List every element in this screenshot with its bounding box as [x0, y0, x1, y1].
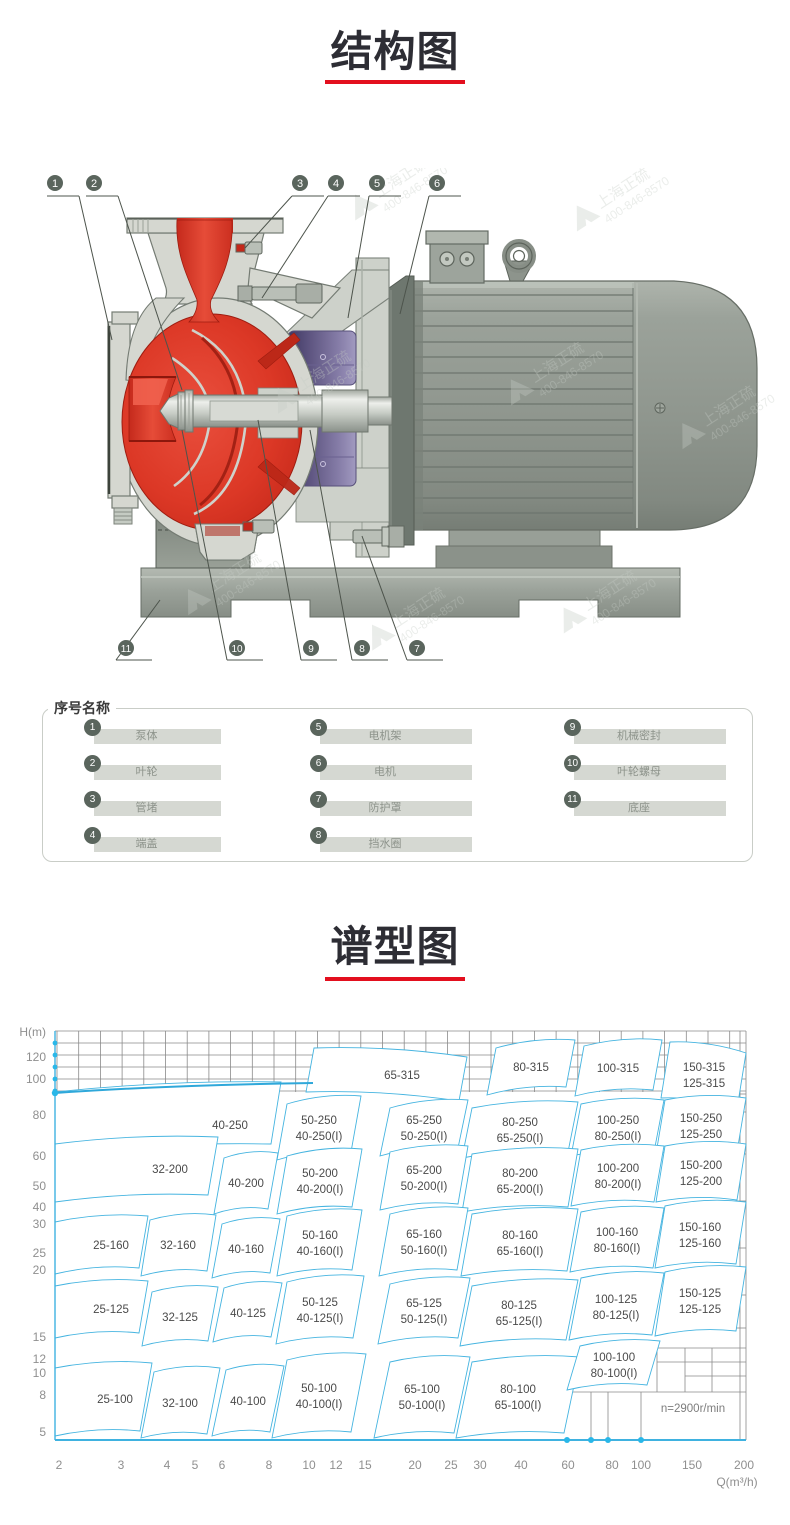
svg-text:200: 200	[734, 1458, 754, 1472]
svg-text:9: 9	[308, 644, 314, 655]
svg-text:65-315: 65-315	[384, 1070, 420, 1082]
svg-text:20: 20	[408, 1458, 422, 1472]
svg-text:6: 6	[219, 1458, 226, 1472]
svg-text:100: 100	[631, 1458, 651, 1472]
svg-text:40-100(I): 40-100(I)	[296, 1399, 343, 1411]
svg-text:5: 5	[39, 1425, 46, 1439]
svg-text:80-315: 80-315	[513, 1062, 549, 1074]
svg-text:80: 80	[605, 1458, 619, 1472]
svg-text:80-100(I): 80-100(I)	[591, 1368, 638, 1380]
svg-text:80-160(I): 80-160(I)	[594, 1243, 641, 1255]
svg-text:150-315: 150-315	[683, 1062, 725, 1074]
svg-text:50-250: 50-250	[301, 1115, 337, 1127]
svg-text:5: 5	[192, 1458, 199, 1472]
svg-text:50-125: 50-125	[302, 1297, 338, 1309]
svg-text:150-125: 150-125	[679, 1288, 721, 1300]
svg-text:7: 7	[414, 644, 420, 655]
svg-text:40-160: 40-160	[228, 1244, 264, 1256]
svg-text:8: 8	[39, 1388, 46, 1402]
svg-text:50-125(I): 50-125(I)	[401, 1314, 448, 1326]
svg-text:100-160: 100-160	[596, 1227, 638, 1239]
svg-text:40-200(I): 40-200(I)	[297, 1184, 344, 1196]
svg-text:15: 15	[33, 1330, 47, 1344]
svg-text:100-125: 100-125	[595, 1294, 637, 1306]
svg-text:50-200: 50-200	[302, 1168, 338, 1180]
svg-text:65-160: 65-160	[406, 1229, 442, 1241]
svg-text:2: 2	[56, 1458, 63, 1472]
svg-text:100-250: 100-250	[597, 1115, 639, 1127]
svg-text:65-160(I): 65-160(I)	[497, 1246, 544, 1258]
svg-text:50-160(I): 50-160(I)	[401, 1245, 448, 1257]
svg-text:40-125(I): 40-125(I)	[297, 1313, 344, 1325]
svg-text:1: 1	[52, 178, 58, 190]
svg-text:6: 6	[434, 178, 440, 190]
svg-text:80-250: 80-250	[502, 1117, 538, 1129]
svg-text:125-250: 125-250	[680, 1129, 722, 1141]
svg-text:30: 30	[473, 1458, 487, 1472]
svg-text:65-125: 65-125	[406, 1298, 442, 1310]
svg-text:150: 150	[682, 1458, 702, 1472]
svg-text:Q(m³/h): Q(m³/h)	[716, 1475, 757, 1489]
svg-text:25-160: 25-160	[93, 1240, 129, 1252]
svg-text:80-200(I): 80-200(I)	[595, 1179, 642, 1191]
svg-text:65-100: 65-100	[404, 1384, 440, 1396]
svg-text:3: 3	[297, 178, 303, 190]
svg-text:65-100(I): 65-100(I)	[495, 1400, 542, 1412]
svg-text:100-200: 100-200	[597, 1163, 639, 1175]
svg-text:40-125: 40-125	[230, 1308, 266, 1320]
svg-text:40-100: 40-100	[230, 1396, 266, 1408]
svg-text:11: 11	[121, 644, 132, 655]
svg-text:4: 4	[333, 178, 339, 190]
svg-text:125-160: 125-160	[679, 1238, 721, 1250]
svg-text:80-250(I): 80-250(I)	[595, 1131, 642, 1143]
svg-text:65-200: 65-200	[406, 1165, 442, 1177]
svg-text:4: 4	[164, 1458, 171, 1472]
svg-text:20: 20	[33, 1263, 47, 1277]
svg-text:65-200(I): 65-200(I)	[497, 1184, 544, 1196]
svg-text:15: 15	[358, 1458, 372, 1472]
svg-text:150-250: 150-250	[680, 1113, 722, 1125]
svg-text:8: 8	[359, 644, 365, 655]
svg-text:65-125(I): 65-125(I)	[496, 1316, 543, 1328]
svg-text:100: 100	[26, 1072, 46, 1086]
svg-text:50-200(I): 50-200(I)	[401, 1181, 448, 1193]
svg-text:40-250: 40-250	[212, 1120, 248, 1132]
svg-text:40: 40	[514, 1458, 528, 1472]
svg-text:50-100(I): 50-100(I)	[399, 1400, 446, 1412]
svg-text:5: 5	[374, 178, 380, 190]
svg-text:10: 10	[33, 1366, 47, 1380]
svg-text:32-125: 32-125	[162, 1312, 198, 1324]
svg-text:50: 50	[33, 1179, 47, 1193]
svg-text:3: 3	[118, 1458, 125, 1472]
svg-text:40-200: 40-200	[228, 1178, 264, 1190]
svg-text:40-250(I): 40-250(I)	[296, 1131, 343, 1143]
svg-text:125-125: 125-125	[679, 1304, 721, 1316]
svg-text:150-160: 150-160	[679, 1222, 721, 1234]
svg-text:50-100: 50-100	[301, 1383, 337, 1395]
svg-text:32-100: 32-100	[162, 1398, 198, 1410]
svg-text:32-200: 32-200	[152, 1164, 188, 1176]
svg-text:80-160: 80-160	[502, 1230, 538, 1242]
svg-text:40-160(I): 40-160(I)	[297, 1246, 344, 1258]
svg-text:50-160: 50-160	[302, 1230, 338, 1242]
svg-text:50-250(I): 50-250(I)	[401, 1131, 448, 1143]
svg-text:120: 120	[26, 1050, 46, 1064]
svg-text:n=2900r/min: n=2900r/min	[661, 1403, 725, 1415]
svg-text:10: 10	[302, 1458, 316, 1472]
svg-text:12: 12	[329, 1458, 343, 1472]
svg-text:8: 8	[266, 1458, 273, 1472]
svg-text:25-125: 25-125	[93, 1304, 129, 1316]
svg-text:80-125: 80-125	[501, 1300, 537, 1312]
svg-text:100-315: 100-315	[597, 1063, 639, 1075]
svg-text:40: 40	[33, 1200, 47, 1214]
svg-text:32-160: 32-160	[160, 1240, 196, 1252]
svg-text:125-200: 125-200	[680, 1176, 722, 1188]
svg-text:80-125(I): 80-125(I)	[593, 1310, 640, 1322]
svg-text:12: 12	[33, 1352, 47, 1366]
svg-text:150-200: 150-200	[680, 1160, 722, 1172]
svg-text:125-315: 125-315	[683, 1078, 725, 1090]
svg-text:25: 25	[33, 1246, 47, 1260]
svg-text:80-100: 80-100	[500, 1384, 536, 1396]
svg-text:65-250: 65-250	[406, 1115, 442, 1127]
svg-text:60: 60	[561, 1458, 575, 1472]
svg-text:80-200: 80-200	[502, 1168, 538, 1180]
svg-text:80: 80	[33, 1108, 47, 1122]
svg-text:25: 25	[444, 1458, 458, 1472]
svg-text:30: 30	[33, 1217, 47, 1231]
svg-text:2: 2	[91, 178, 97, 190]
svg-text:100-100: 100-100	[593, 1352, 635, 1364]
svg-text:65-250(I): 65-250(I)	[497, 1133, 544, 1145]
svg-text:25-100: 25-100	[97, 1394, 133, 1406]
svg-text:60: 60	[33, 1149, 47, 1163]
svg-text:H(m): H(m)	[19, 1025, 46, 1039]
svg-text:10: 10	[231, 644, 243, 655]
